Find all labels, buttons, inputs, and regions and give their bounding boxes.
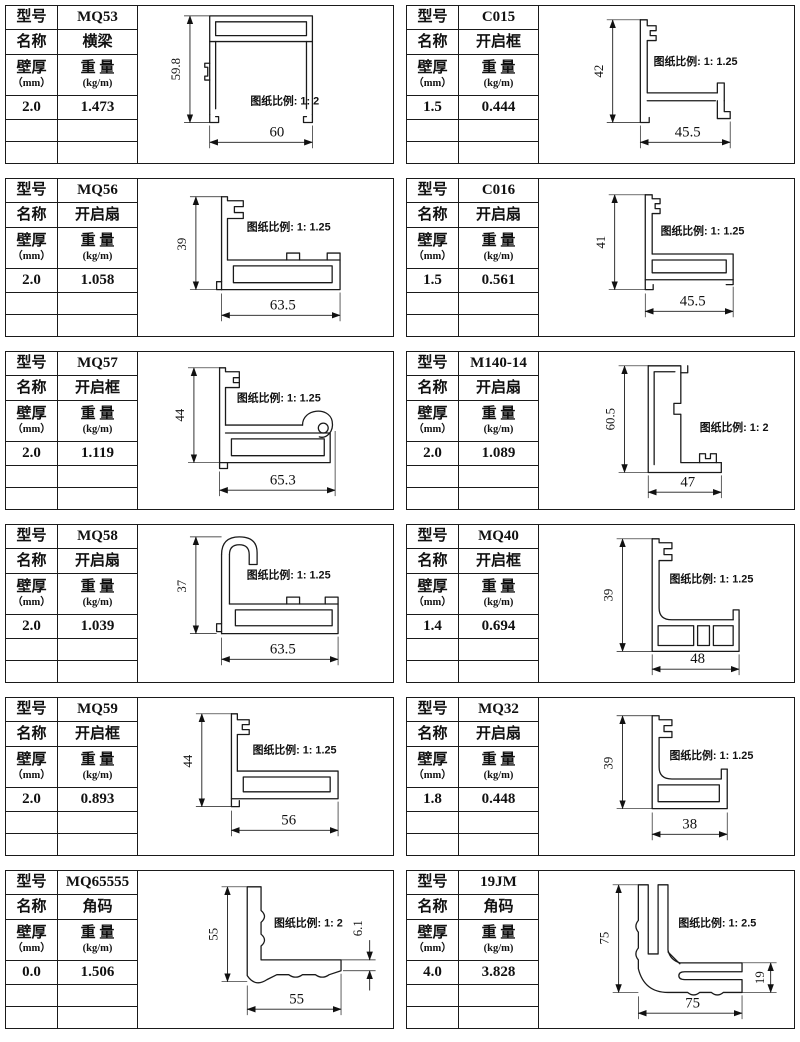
cross-section-mq58: 37 63.5 图纸比例: 1: 1.25 <box>138 525 393 682</box>
model-value: C015 <box>459 6 538 29</box>
profile-card-mq40: 型号MQ40 名称开启框 壁厚（mm）重 量(kg/m) 1.40.694 <box>406 524 795 683</box>
profile-card-mq65555: 型号MQ65555 名称角码 壁厚（mm）重 量(kg/m) 0.01.506 … <box>5 870 394 1029</box>
profile-card-m140-14: 型号M140-14 名称开启扇 壁厚（mm）重 量(kg/m) 2.01.089 <box>406 351 795 510</box>
name-label: 名称 <box>407 895 459 919</box>
profile-card-mq57: 型号MQ57 名称开启框 壁厚（mm）重 量(kg/m) 2.01.119 <box>5 351 394 510</box>
thickness-header: 壁厚（mm） <box>6 920 58 960</box>
spec-table: 型号C016 名称开启扇 壁厚（mm）重 量(kg/m) 1.50.561 <box>407 179 539 336</box>
name-value: 开启扇 <box>459 203 538 227</box>
weight-header: 重 量(kg/m) <box>58 401 137 441</box>
name-label: 名称 <box>407 376 459 400</box>
thickness-value: 2.0 <box>407 442 459 465</box>
weight-header: 重 量(kg/m) <box>58 920 137 960</box>
empty-cell <box>459 985 538 1006</box>
height-dimension: 41 <box>594 236 608 249</box>
profile-card-mq59: 型号MQ59 名称开启框 壁厚（mm）重 量(kg/m) 2.00.893 <box>5 697 394 856</box>
empty-cell <box>58 293 137 314</box>
model-value: MQ58 <box>58 525 137 548</box>
empty-cell <box>459 120 538 141</box>
scale-note: 图纸比例: 1: 1.25 <box>253 742 337 756</box>
profile-geometry <box>640 20 730 123</box>
empty-cell <box>407 639 459 660</box>
thickness-value: 1.4 <box>407 615 459 638</box>
profile-card-19jm: 型号19JM 名称角码 壁厚（mm）重 量(kg/m) 4.03.828 75 <box>406 870 795 1029</box>
weight-header: 重 量(kg/m) <box>459 574 538 614</box>
model-label: 型号 <box>407 698 459 721</box>
name-value: 开启扇 <box>58 549 137 573</box>
model-value: MQ57 <box>58 352 137 375</box>
profile-drawing: 60.5 47 图纸比例: 1: 2 <box>539 352 794 509</box>
empty-cell <box>407 985 459 1006</box>
empty-cell <box>407 120 459 141</box>
thickness-header: 壁厚（mm） <box>407 747 459 787</box>
height-dimension: 59.8 <box>169 58 183 80</box>
profile-geometry <box>648 366 721 473</box>
model-value: MQ65555 <box>58 871 137 894</box>
weight-header: 重 量(kg/m) <box>459 747 538 787</box>
thickness-value: 1.8 <box>407 788 459 811</box>
empty-cell <box>58 661 137 682</box>
thickness-header: 壁厚（mm） <box>407 920 459 960</box>
thickness-value: 4.0 <box>407 961 459 984</box>
spec-table: 型号MQ65555 名称角码 壁厚（mm）重 量(kg/m) 0.01.506 <box>6 871 138 1028</box>
empty-cell <box>58 812 137 833</box>
spec-table: 型号MQ56 名称开启扇 壁厚（mm）重 量(kg/m) 2.01.058 <box>6 179 138 336</box>
name-value: 角码 <box>58 895 137 919</box>
scale-note: 图纸比例: 1: 2 <box>250 94 319 108</box>
thickness-header: 壁厚（mm） <box>6 401 58 441</box>
scale-note: 图纸比例: 1: 2 <box>700 420 769 434</box>
model-label: 型号 <box>407 525 459 548</box>
name-value: 开启框 <box>58 722 137 746</box>
thickness-header: 壁厚（mm） <box>407 574 459 614</box>
height-dimension: 39 <box>175 238 189 251</box>
thickness-value: 2.0 <box>6 442 58 465</box>
cross-section-mq56: 39 63.5 图纸比例: 1: 1.25 <box>138 179 393 336</box>
profile-drawing: 44 65.3 图纸比例: 1: 1.25 <box>138 352 393 509</box>
height-dimension: 37 <box>175 579 189 592</box>
width-dimension: 38 <box>682 816 697 832</box>
model-value: MQ40 <box>459 525 538 548</box>
width-dimension: 63.5 <box>270 641 296 657</box>
width-dimension: 45.5 <box>680 293 706 309</box>
thickness-value: 0.0 <box>6 961 58 984</box>
thickness-value: 2.0 <box>6 96 58 119</box>
profile-geometry <box>220 368 333 469</box>
profile-drawing: 39 38 图纸比例: 1: 1.25 <box>539 698 794 855</box>
spec-table: 型号C015 名称开启框 壁厚（mm）重 量(kg/m) 1.50.444 <box>407 6 539 163</box>
scale-note: 图纸比例: 1: 2.5 <box>678 915 756 929</box>
cross-section-c015: 42 45.5 图纸比例: 1: 1.25 <box>539 6 794 163</box>
width-dimension: 56 <box>281 812 296 828</box>
profile-card-mq32: 型号MQ32 名称开启扇 壁厚（mm）重 量(kg/m) 1.80.448 39 <box>406 697 795 856</box>
name-value: 横梁 <box>58 30 137 54</box>
spec-table: 型号MQ57 名称开启框 壁厚（mm）重 量(kg/m) 2.01.119 <box>6 352 138 509</box>
name-label: 名称 <box>407 722 459 746</box>
model-label: 型号 <box>6 352 58 375</box>
profile-geometry <box>231 714 338 807</box>
height-dimension: 60.5 <box>604 408 618 430</box>
profile-geometry <box>217 197 340 290</box>
dimensions: 44 65.3 <box>173 368 335 496</box>
height-dimension: 39 <box>602 589 616 602</box>
model-value: MQ56 <box>58 179 137 202</box>
weight-value: 0.694 <box>459 615 538 638</box>
name-value: 开启框 <box>459 549 538 573</box>
empty-cell <box>6 834 58 855</box>
weight-header: 重 量(kg/m) <box>58 228 137 268</box>
empty-cell <box>58 834 137 855</box>
name-label: 名称 <box>6 203 58 227</box>
profile-card-mq53: 型号MQ53 名称横梁 壁厚（mm）重 量(kg/m) 2.01.473 <box>5 5 394 164</box>
name-label: 名称 <box>6 895 58 919</box>
empty-cell <box>6 812 58 833</box>
width-dimension: 55 <box>289 991 304 1007</box>
height-dimension: 75 <box>598 932 612 945</box>
empty-cell <box>459 661 538 682</box>
model-label: 型号 <box>407 352 459 375</box>
width-dimension: 63.5 <box>270 297 296 313</box>
profile-drawing: 41 45.5 图纸比例: 1: 1.25 <box>539 179 794 336</box>
height-dimension: 39 <box>602 757 616 770</box>
spec-table: 型号19JM 名称角码 壁厚（mm）重 量(kg/m) 4.03.828 <box>407 871 539 1028</box>
scale-note: 图纸比例: 1: 1.25 <box>669 571 753 585</box>
name-value: 开启框 <box>459 30 538 54</box>
empty-cell <box>6 293 58 314</box>
weight-value: 1.473 <box>58 96 137 119</box>
spec-table: 型号MQ40 名称开启框 壁厚（mm）重 量(kg/m) 1.40.694 <box>407 525 539 682</box>
name-value: 开启扇 <box>459 722 538 746</box>
thickness-header: 壁厚（mm） <box>6 228 58 268</box>
dimensions: 39 63.5 <box>175 197 340 321</box>
width-dimension: 60 <box>269 124 284 140</box>
profile-drawing: 39 48 图纸比例: 1: 1.25 <box>539 525 794 682</box>
model-label: 型号 <box>6 525 58 548</box>
empty-cell <box>6 985 58 1006</box>
empty-cell <box>58 466 137 487</box>
extra-dimension: 6.1 <box>351 920 365 936</box>
dimensions: 55 55 6.1 <box>207 887 376 1015</box>
name-value: 开启扇 <box>459 376 538 400</box>
thickness-value: 1.5 <box>407 269 459 292</box>
model-value: MQ53 <box>58 6 137 29</box>
dimensions: 41 45.5 <box>594 195 733 317</box>
width-dimension: 48 <box>690 651 705 667</box>
empty-cell <box>6 1007 58 1028</box>
empty-cell <box>58 488 137 509</box>
profile-card-c015: 型号C015 名称开启框 壁厚（mm）重 量(kg/m) 1.50.444 <box>406 5 795 164</box>
spec-table: 型号MQ58 名称开启扇 壁厚（mm）重 量(kg/m) 2.01.039 <box>6 525 138 682</box>
profile-card-c016: 型号C016 名称开启扇 壁厚（mm）重 量(kg/m) 1.50.561 <box>406 178 795 337</box>
dimensions: 42 45.5 <box>592 20 730 148</box>
profile-catalog-grid: 型号MQ53 名称横梁 壁厚（mm）重 量(kg/m) 2.01.473 <box>0 0 800 1042</box>
empty-cell <box>407 142 459 163</box>
empty-cell <box>459 1007 538 1028</box>
profile-drawing: 39 63.5 图纸比例: 1: 1.25 <box>138 179 393 336</box>
name-label: 名称 <box>407 549 459 573</box>
empty-cell <box>6 120 58 141</box>
cross-section-mq32: 39 38 图纸比例: 1: 1.25 <box>539 698 794 855</box>
empty-cell <box>407 466 459 487</box>
empty-cell <box>6 142 58 163</box>
name-value: 开启扇 <box>58 203 137 227</box>
cross-section-mq40: 39 48 图纸比例: 1: 1.25 <box>539 525 794 682</box>
empty-cell <box>407 834 459 855</box>
empty-cell <box>407 293 459 314</box>
empty-cell <box>459 142 538 163</box>
thickness-header: 壁厚（mm） <box>407 55 459 95</box>
empty-cell <box>459 315 538 336</box>
scale-note: 图纸比例: 1: 1.25 <box>247 219 331 233</box>
weight-value: 3.828 <box>459 961 538 984</box>
cross-section-mq59: 44 56 图纸比例: 1: 1.25 <box>138 698 393 855</box>
model-value: M140-14 <box>459 352 538 375</box>
empty-cell <box>459 466 538 487</box>
profile-drawing: 59.8 60 图纸比例: 1: 2 <box>138 6 393 163</box>
empty-cell <box>6 488 58 509</box>
name-label: 名称 <box>6 30 58 54</box>
model-label: 型号 <box>6 6 58 29</box>
empty-cell <box>6 466 58 487</box>
weight-value: 0.448 <box>459 788 538 811</box>
weight-value: 0.561 <box>459 269 538 292</box>
profile-card-mq56: 型号MQ56 名称开启扇 壁厚（mm）重 量(kg/m) 2.01.058 <box>5 178 394 337</box>
model-value: MQ32 <box>459 698 538 721</box>
weight-header: 重 量(kg/m) <box>58 55 137 95</box>
thickness-header: 壁厚（mm） <box>6 55 58 95</box>
model-value: MQ59 <box>58 698 137 721</box>
empty-cell <box>407 812 459 833</box>
weight-value: 0.444 <box>459 96 538 119</box>
spec-table: 型号M140-14 名称开启扇 壁厚（mm）重 量(kg/m) 2.01.089 <box>407 352 539 509</box>
empty-cell <box>58 639 137 660</box>
weight-value: 0.893 <box>58 788 137 811</box>
dimensions: 75 75 19 <box>598 885 777 1019</box>
name-label: 名称 <box>6 722 58 746</box>
thickness-value: 2.0 <box>6 788 58 811</box>
empty-cell <box>407 1007 459 1028</box>
empty-cell <box>459 812 538 833</box>
empty-cell <box>58 120 137 141</box>
model-label: 型号 <box>407 6 459 29</box>
thickness-value: 2.0 <box>6 269 58 292</box>
height-dimension: 44 <box>173 408 187 421</box>
empty-cell <box>58 1007 137 1028</box>
scale-note: 图纸比例: 1: 1.25 <box>669 748 753 762</box>
empty-cell <box>459 834 538 855</box>
empty-cell <box>407 488 459 509</box>
profile-drawing: 75 75 19 图纸比例: 1: 2.5 <box>539 871 794 1028</box>
cross-section-mq53: 59.8 60 图纸比例: 1: 2 <box>138 6 393 163</box>
dimensions: 44 56 <box>181 714 338 836</box>
weight-header: 重 量(kg/m) <box>459 401 538 441</box>
cross-section-mq65555: 55 55 6.1 图纸比例: 1: 2 <box>138 871 393 1028</box>
scale-note: 图纸比例: 1: 2 <box>274 915 343 929</box>
cross-section-c016: 41 45.5 图纸比例: 1: 1.25 <box>539 179 794 336</box>
height-dimension: 44 <box>181 754 195 767</box>
width-dimension: 75 <box>685 995 700 1011</box>
name-value: 开启框 <box>58 376 137 400</box>
model-value: C016 <box>459 179 538 202</box>
spec-table: 型号MQ53 名称横梁 壁厚（mm）重 量(kg/m) 2.01.473 <box>6 6 138 163</box>
weight-value: 1.058 <box>58 269 137 292</box>
empty-cell <box>58 985 137 1006</box>
profile-geometry <box>645 195 733 290</box>
weight-header: 重 量(kg/m) <box>58 574 137 614</box>
height-dimension: 55 <box>207 928 221 941</box>
name-label: 名称 <box>6 376 58 400</box>
empty-cell <box>58 142 137 163</box>
weight-value: 1.039 <box>58 615 137 638</box>
name-value: 角码 <box>459 895 538 919</box>
empty-cell <box>459 488 538 509</box>
thickness-header: 壁厚（mm） <box>6 747 58 787</box>
profile-geometry <box>217 537 338 634</box>
profile-drawing: 55 55 6.1 图纸比例: 1: 2 <box>138 871 393 1028</box>
model-label: 型号 <box>407 871 459 894</box>
profile-geometry <box>652 539 739 652</box>
height-dimension: 42 <box>592 65 606 78</box>
weight-value: 1.089 <box>459 442 538 465</box>
scale-note: 图纸比例: 1: 1.25 <box>654 54 738 68</box>
scale-note: 图纸比例: 1: 1.25 <box>237 390 321 404</box>
thickness-header: 壁厚（mm） <box>407 228 459 268</box>
cross-section-mq57: 44 65.3 图纸比例: 1: 1.25 <box>138 352 393 509</box>
name-label: 名称 <box>407 203 459 227</box>
model-value: 19JM <box>459 871 538 894</box>
profile-drawing: 37 63.5 图纸比例: 1: 1.25 <box>138 525 393 682</box>
scale-note: 图纸比例: 1: 1.25 <box>661 223 745 237</box>
profile-geometry <box>636 885 742 995</box>
empty-cell <box>6 639 58 660</box>
empty-cell <box>407 661 459 682</box>
width-dimension: 45.5 <box>675 124 701 140</box>
empty-cell <box>459 293 538 314</box>
cross-section-m140-14: 60.5 47 图纸比例: 1: 2 <box>539 352 794 509</box>
weight-header: 重 量(kg/m) <box>459 55 538 95</box>
thickness-value: 1.5 <box>407 96 459 119</box>
profile-drawing: 42 45.5 图纸比例: 1: 1.25 <box>539 6 794 163</box>
weight-header: 重 量(kg/m) <box>58 747 137 787</box>
spec-table: 型号MQ59 名称开启框 壁厚（mm）重 量(kg/m) 2.00.893 <box>6 698 138 855</box>
empty-cell <box>6 315 58 336</box>
name-label: 名称 <box>407 30 459 54</box>
dimensions: 39 48 <box>602 539 739 675</box>
scale-note: 图纸比例: 1: 1.25 <box>247 567 331 581</box>
profile-geometry <box>247 887 341 983</box>
spec-table: 型号MQ32 名称开启扇 壁厚（mm）重 量(kg/m) 1.80.448 <box>407 698 539 855</box>
empty-cell <box>407 315 459 336</box>
extra-dimension: 19 <box>753 971 767 984</box>
thickness-header: 壁厚（mm） <box>6 574 58 614</box>
weight-header: 重 量(kg/m) <box>459 920 538 960</box>
weight-value: 1.506 <box>58 961 137 984</box>
weight-header: 重 量(kg/m) <box>459 228 538 268</box>
cross-section-19jm: 75 75 19 图纸比例: 1: 2.5 <box>539 871 794 1028</box>
model-label: 型号 <box>6 871 58 894</box>
empty-cell <box>6 661 58 682</box>
width-dimension: 65.3 <box>270 472 296 488</box>
model-label: 型号 <box>6 179 58 202</box>
name-label: 名称 <box>6 549 58 573</box>
weight-value: 1.119 <box>58 442 137 465</box>
thickness-value: 2.0 <box>6 615 58 638</box>
profile-card-mq58: 型号MQ58 名称开启扇 壁厚（mm）重 量(kg/m) 2.01.039 <box>5 524 394 683</box>
thickness-header: 壁厚（mm） <box>407 401 459 441</box>
empty-cell <box>58 315 137 336</box>
profile-drawing: 44 56 图纸比例: 1: 1.25 <box>138 698 393 855</box>
model-label: 型号 <box>6 698 58 721</box>
width-dimension: 47 <box>680 474 695 490</box>
empty-cell <box>459 639 538 660</box>
model-label: 型号 <box>407 179 459 202</box>
